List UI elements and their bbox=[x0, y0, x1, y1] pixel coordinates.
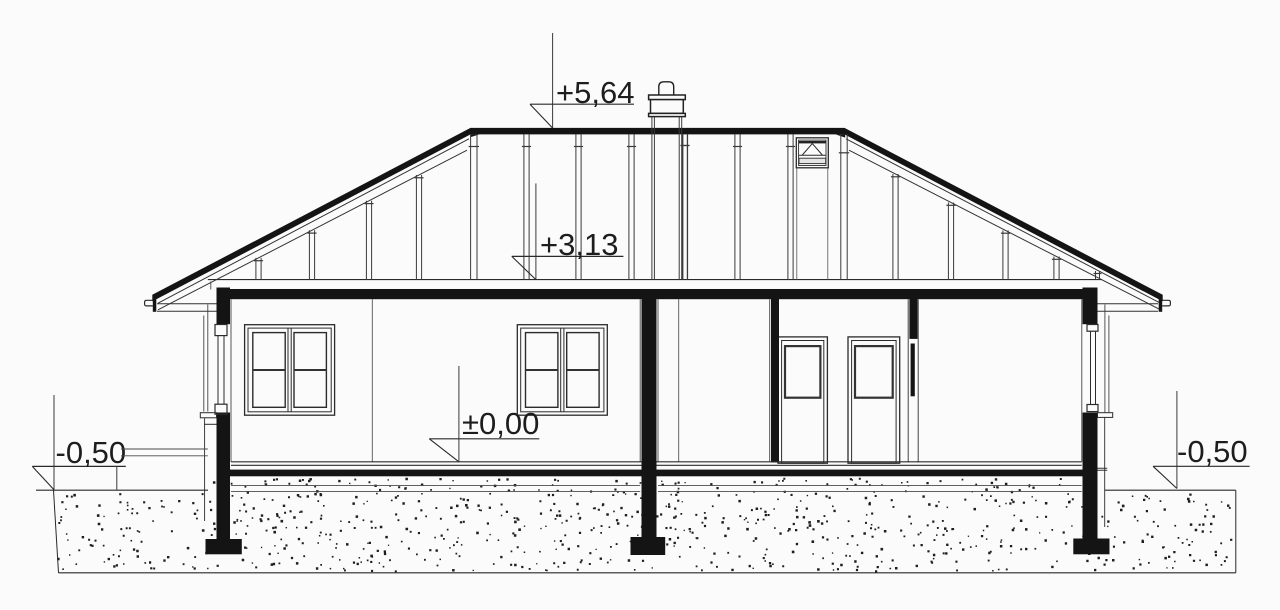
svg-text:+3,13: +3,13 bbox=[540, 227, 618, 262]
svg-text:±0,00: ±0,00 bbox=[462, 406, 539, 441]
svg-text:+5,64: +5,64 bbox=[556, 75, 634, 110]
svg-text:-0,50: -0,50 bbox=[1177, 434, 1248, 469]
svg-text:-0,50: -0,50 bbox=[56, 435, 127, 470]
